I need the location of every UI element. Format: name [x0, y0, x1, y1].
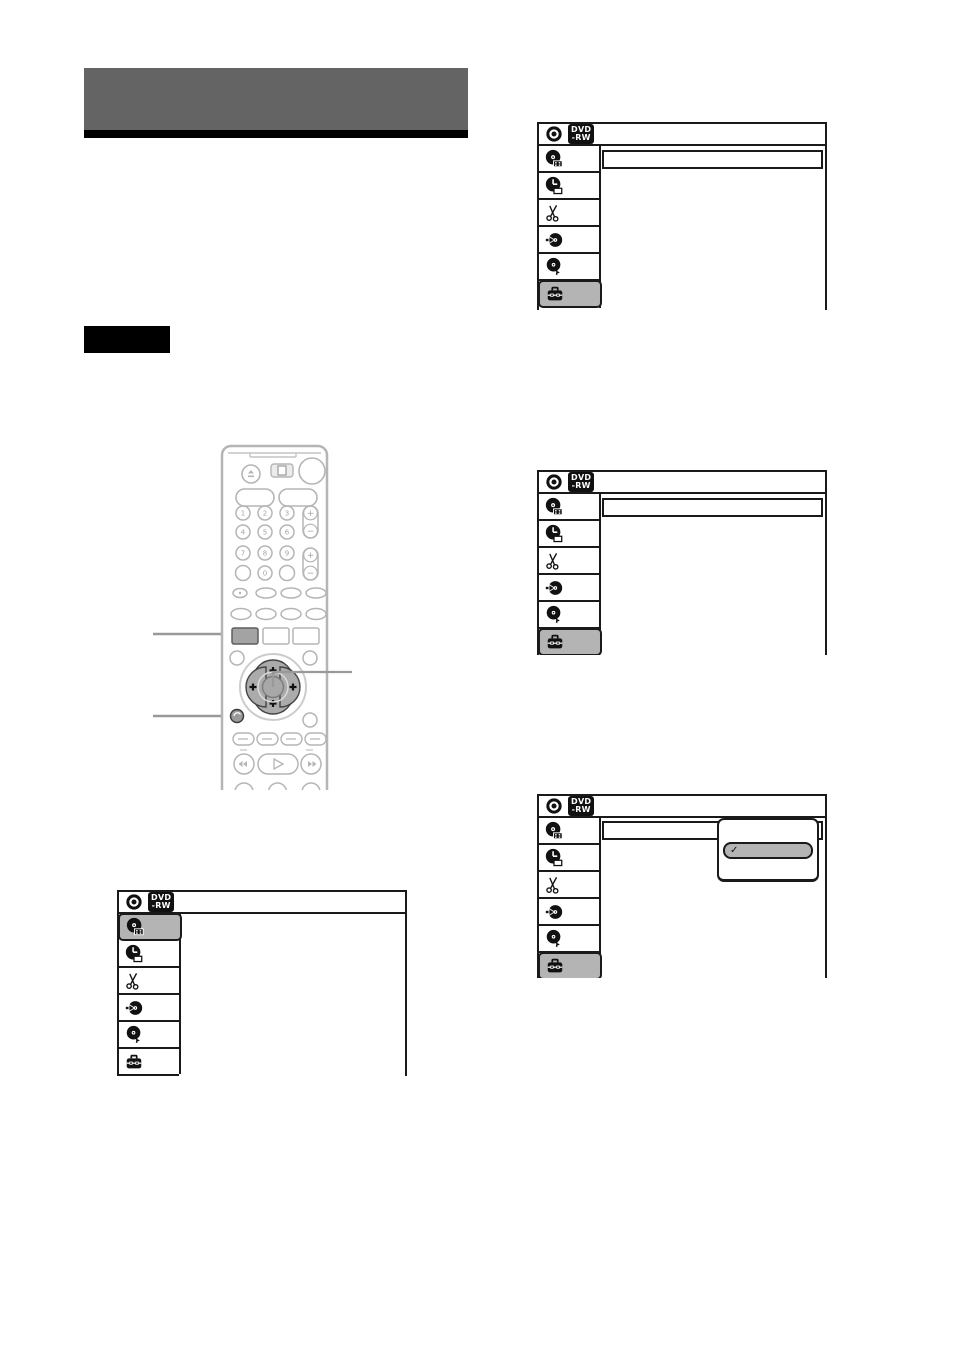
menu-item-edit	[119, 968, 179, 995]
key-9: 9	[285, 550, 289, 558]
menu-item-disc-setting	[119, 1022, 179, 1049]
edit-scissors-icon	[544, 203, 564, 223]
dvd-rw-badge: DVD -RW	[148, 892, 174, 913]
osd-screen-tools-2: DVD -RW	[537, 470, 827, 655]
disc-setting-icon	[544, 929, 564, 949]
menu-item-disc-setting	[539, 254, 599, 281]
title-list-icon	[544, 149, 564, 169]
disc-icon	[125, 893, 143, 911]
tools-icon	[545, 632, 565, 652]
rect-button-3	[293, 628, 319, 644]
option-box	[602, 498, 823, 517]
dvd-rw-badge: DVD -RW	[568, 124, 594, 145]
popup-selected-option: ✓	[723, 842, 813, 859]
menu-body	[119, 914, 405, 1074]
menu-item-dubbing	[539, 575, 599, 602]
key-2: 2	[263, 510, 267, 518]
tools-icon	[545, 284, 565, 304]
osd-screen-title-list: DVD -RW	[117, 890, 407, 1076]
menu-sidebar	[539, 818, 601, 976]
tools-button	[232, 628, 258, 644]
option-box	[602, 150, 823, 169]
dubbing-icon	[544, 902, 564, 922]
key-3: 3	[285, 510, 289, 518]
dubbing-icon	[544, 578, 564, 598]
channel-plus-label: +	[307, 551, 315, 561]
tools-icon	[124, 1052, 144, 1072]
key-6: 6	[285, 529, 290, 537]
menu-sidebar	[539, 146, 601, 308]
dubbing-icon	[124, 998, 144, 1018]
menu-item-edit	[539, 872, 599, 899]
disc-icon	[545, 125, 563, 143]
osd-screen-tools-1: DVD -RW	[537, 122, 827, 310]
title-list-icon	[125, 917, 145, 937]
manual-page: 1 2 3 4 5 6 7 8 9 0 + − + −	[0, 0, 954, 1351]
menu-item-tools	[538, 280, 602, 308]
badge-line2: -RW	[152, 902, 171, 910]
menu-item-timer	[119, 941, 179, 968]
badge-line2: -RW	[572, 806, 591, 814]
return-button	[231, 710, 244, 723]
menu-item-dubbing	[119, 995, 179, 1022]
disc-setting-icon	[124, 1025, 144, 1045]
menu-header: DVD -RW	[119, 892, 405, 914]
menu-item-title-list	[539, 146, 599, 173]
disc-icon	[545, 797, 563, 815]
key-1: 1	[241, 510, 245, 518]
menu-item-disc-setting	[539, 602, 599, 629]
menu-header: DVD -RW	[539, 124, 825, 146]
badge-line2: -RW	[572, 134, 591, 142]
menu-item-tools	[119, 1049, 179, 1076]
edit-scissors-icon	[544, 551, 564, 571]
menu-item-dubbing	[539, 227, 599, 254]
key-0: 0	[263, 570, 267, 578]
key-7: 7	[241, 550, 245, 558]
disc-setting-icon	[544, 257, 564, 277]
disc-setting-icon	[544, 605, 564, 625]
key-5: 5	[263, 529, 267, 537]
menu-item-tools	[538, 952, 602, 978]
menu-header: DVD -RW	[539, 472, 825, 494]
dubbing-icon	[544, 230, 564, 250]
menu-sidebar	[539, 494, 601, 653]
key-4: 4	[241, 529, 246, 537]
dvd-rw-badge: DVD -RW	[568, 796, 594, 817]
tools-icon	[545, 956, 565, 976]
tv-dvd-switch	[271, 464, 293, 477]
osd-screen-tools-popup: DVD -RW ✓	[537, 794, 827, 978]
channel-minus-label: −	[307, 569, 315, 579]
submenu-popup: ✓	[717, 818, 819, 882]
edit-scissors-icon	[124, 971, 144, 991]
timer-icon	[544, 176, 564, 196]
menu-body: ✓	[539, 818, 825, 976]
menu-item-dubbing	[539, 899, 599, 926]
chapter-title-bar	[84, 68, 468, 130]
menu-item-timer	[539, 173, 599, 200]
title-list-icon	[544, 497, 564, 517]
key-8: 8	[263, 550, 267, 558]
menu-item-title-list	[539, 494, 599, 521]
menu-item-title-list	[539, 818, 599, 845]
menu-item-edit	[539, 200, 599, 227]
menu-item-timer	[539, 521, 599, 548]
disc-icon	[545, 473, 563, 491]
menu-sidebar	[119, 914, 181, 1074]
checkmark-icon: ✓	[730, 845, 738, 857]
rect-button-2	[263, 628, 289, 644]
section-label-box	[84, 326, 170, 353]
menu-item-tools	[538, 628, 602, 655]
timer-icon	[124, 944, 144, 964]
menu-body	[539, 494, 825, 653]
volume-plus-label: +	[307, 509, 315, 519]
timer-icon	[544, 848, 564, 868]
title-list-icon	[544, 821, 564, 841]
menu-item-timer	[539, 845, 599, 872]
edit-scissors-icon	[544, 875, 564, 895]
dvd-rw-badge: DVD -RW	[568, 472, 594, 493]
menu-header: DVD -RW	[539, 796, 825, 818]
menu-item-title-list	[118, 913, 182, 941]
menu-item-edit	[539, 548, 599, 575]
badge-line2: -RW	[572, 482, 591, 490]
chapter-title-rule	[84, 130, 468, 138]
remote-control-figure: 1 2 3 4 5 6 7 8 9 0 + − + −	[140, 440, 360, 790]
menu-item-disc-setting	[539, 926, 599, 953]
menu-body	[539, 146, 825, 308]
timer-icon	[544, 524, 564, 544]
volume-minus-label: −	[307, 527, 315, 537]
